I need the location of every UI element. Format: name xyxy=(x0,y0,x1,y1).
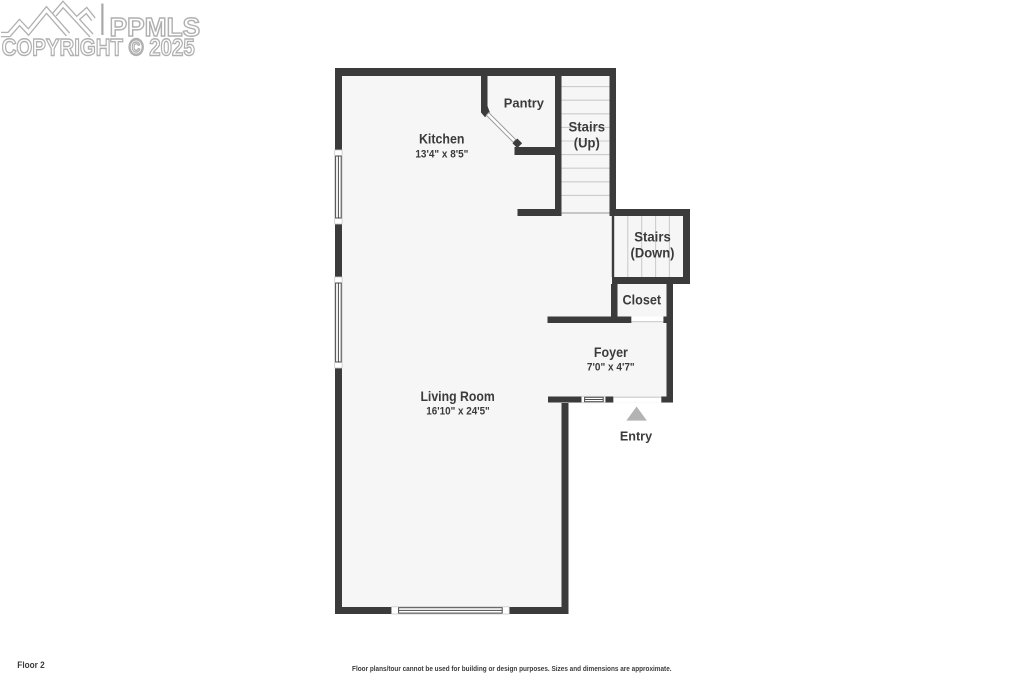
svg-text:Stairs: Stairs xyxy=(634,230,671,245)
svg-text:Floor 2: Floor 2 xyxy=(17,660,44,670)
svg-text:Pantry: Pantry xyxy=(504,95,545,110)
svg-text:13'4" x 8'5": 13'4" x 8'5" xyxy=(415,148,468,160)
svg-text:Stairs: Stairs xyxy=(569,120,606,135)
svg-text:COPYRIGHT © 2025: COPYRIGHT © 2025 xyxy=(2,35,195,62)
svg-text:Entry: Entry xyxy=(620,429,652,443)
svg-text:Kitchen: Kitchen xyxy=(419,132,465,147)
svg-text:7'0" x 4'7": 7'0" x 4'7" xyxy=(587,361,635,373)
svg-text:16'10" x 24'5": 16'10" x 24'5" xyxy=(426,405,490,417)
svg-text:(Down): (Down) xyxy=(631,246,675,261)
svg-text:Living Room: Living Room xyxy=(420,388,494,404)
svg-text:Closet: Closet xyxy=(623,293,662,308)
svg-text:Floor plans/tour cannot be use: Floor plans/tour cannot be used for buil… xyxy=(352,664,672,673)
svg-text:Foyer: Foyer xyxy=(594,345,629,360)
svg-text:(Up): (Up) xyxy=(574,136,600,151)
